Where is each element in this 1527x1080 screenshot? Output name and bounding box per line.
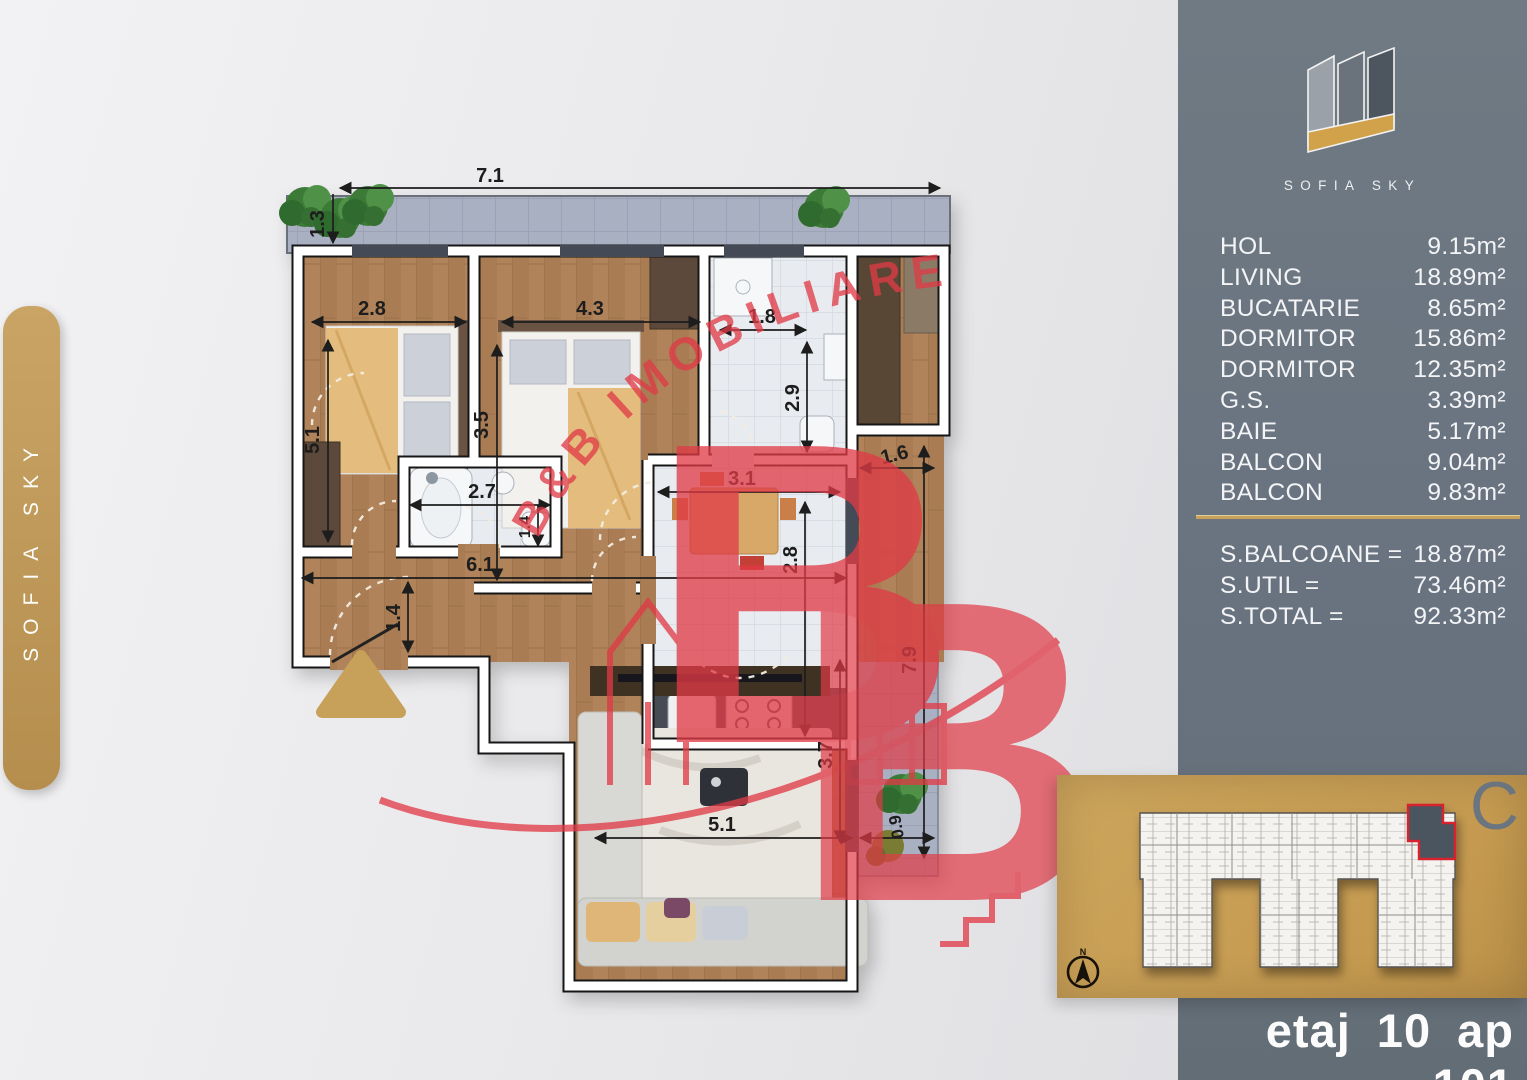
- dim-balcony-top-w: 7.1: [476, 165, 504, 187]
- section-letter: C: [1470, 767, 1519, 845]
- side-tab-sofia-sky: SOFIA SKY: [3, 306, 60, 790]
- room-label: BAIE: [1220, 418, 1277, 446]
- table-row: G.S. 3.39m²: [1220, 387, 1506, 418]
- room-label: DORMITOR: [1220, 325, 1356, 353]
- dim-bath-w: 2.7: [468, 481, 496, 503]
- room-label: HOL: [1220, 233, 1272, 261]
- room-label: G.S.: [1220, 387, 1271, 415]
- dim-bed1-h: 5.1: [302, 426, 324, 454]
- room-area: 3.39m²: [1427, 387, 1506, 415]
- table-row: S.BALCOANE = 18.87m²: [1220, 541, 1506, 572]
- total-value: 18.87m²: [1413, 541, 1506, 569]
- table-row: HOL 9.15m²: [1220, 233, 1506, 264]
- table-row: BAIE 5.17m²: [1220, 418, 1506, 449]
- table-row: BUCATARIE 8.65m²: [1220, 295, 1506, 326]
- compass-north-label: N: [1080, 947, 1087, 957]
- total-label: S.UTIL =: [1220, 572, 1320, 600]
- room-area: 5.17m²: [1427, 418, 1506, 446]
- total-label: S.BALCOANE =: [1220, 541, 1403, 569]
- side-tab-label: SOFIA SKY: [20, 435, 44, 662]
- floor-apartment-label: etaj 10 ap 101: [1178, 1003, 1527, 1080]
- floor-plan-sheet: 7.1 1.3 2.8 5.1 4.3 3.5 1.8 2.9 2.7 1.4 …: [0, 0, 1527, 1080]
- dim-balcony-top-d: 1.3: [307, 210, 329, 238]
- room-area: 15.86m²: [1413, 325, 1506, 353]
- totals-table: S.BALCOANE = 18.87m² S.UTIL = 73.46m² S.…: [1220, 541, 1506, 634]
- room-area-table: HOL 9.15m² LIVING 18.89m² BUCATARIE 8.65…: [1220, 233, 1506, 510]
- room-area: 9.83m²: [1427, 479, 1506, 507]
- table-row: DORMITOR 15.86m²: [1220, 325, 1506, 356]
- room-area: 12.35m²: [1413, 356, 1506, 384]
- table-row: S.UTIL = 73.46m²: [1220, 572, 1506, 603]
- room-label: BALCON: [1220, 479, 1323, 507]
- dim-hall-w: 6.1: [466, 554, 494, 576]
- wardrobe-2: [650, 255, 698, 329]
- building-footprint: [1140, 805, 1455, 967]
- compass-icon: N: [1068, 947, 1098, 987]
- dim-bed2-h: 3.5: [471, 411, 493, 439]
- table-row: S.TOTAL = 92.33m²: [1220, 603, 1506, 634]
- building-site-plan: N: [1057, 775, 1527, 998]
- dim-hall-h: 1.4: [383, 603, 405, 632]
- room-label: BUCATARIE: [1220, 295, 1360, 323]
- watermark-letter-b2: B: [792, 512, 1103, 992]
- table-row: DORMITOR 12.35m²: [1220, 356, 1506, 387]
- table-row: BALCON 9.04m²: [1220, 449, 1506, 480]
- room-area: 9.04m²: [1427, 449, 1506, 477]
- brand-logo-block: SOFIA SKY: [1178, 40, 1527, 193]
- total-value: 92.33m²: [1413, 603, 1506, 631]
- total-label: S.TOTAL =: [1220, 603, 1344, 631]
- dim-bed1-w: 2.8: [358, 298, 386, 320]
- logo-title: SOFIA SKY: [1284, 178, 1421, 193]
- room-label: DORMITOR: [1220, 356, 1356, 384]
- room-label: LIVING: [1220, 264, 1303, 292]
- total-value: 73.46m²: [1413, 572, 1506, 600]
- sofia-sky-logo-icon: [1278, 40, 1428, 166]
- gold-divider: [1196, 516, 1520, 519]
- room-label: BALCON: [1220, 449, 1323, 477]
- room-area: 9.15m²: [1427, 233, 1506, 261]
- table-row: LIVING 18.89m²: [1220, 264, 1506, 295]
- room-area: 18.89m²: [1413, 264, 1506, 292]
- site-plan-inset: N C: [1057, 775, 1527, 998]
- dim-bed2-w: 4.3: [576, 298, 604, 320]
- wardrobe-1: [302, 442, 340, 548]
- room-area: 8.65m²: [1427, 295, 1506, 323]
- table-row: BALCON 9.83m²: [1220, 479, 1506, 510]
